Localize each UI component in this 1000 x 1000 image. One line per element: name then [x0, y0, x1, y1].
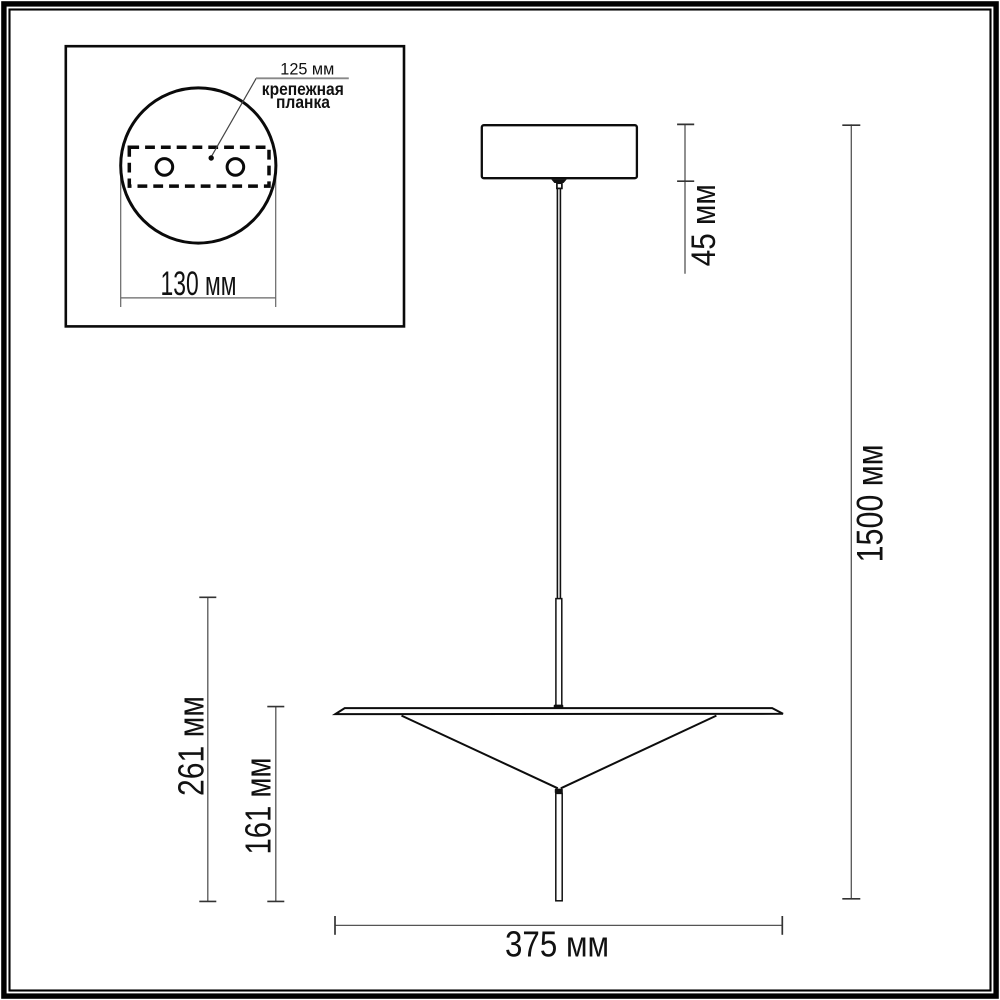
svg-text:планка: планка — [276, 92, 330, 112]
svg-text:375 мм: 375 мм — [505, 924, 609, 965]
svg-text:1500 мм: 1500 мм — [850, 444, 891, 562]
svg-text:45 мм: 45 мм — [685, 184, 723, 266]
svg-text:130 мм: 130 мм — [161, 265, 237, 303]
svg-text:161 мм: 161 мм — [237, 758, 278, 855]
svg-text:261 мм: 261 мм — [171, 696, 212, 796]
svg-text:125 мм: 125 мм — [280, 60, 334, 78]
